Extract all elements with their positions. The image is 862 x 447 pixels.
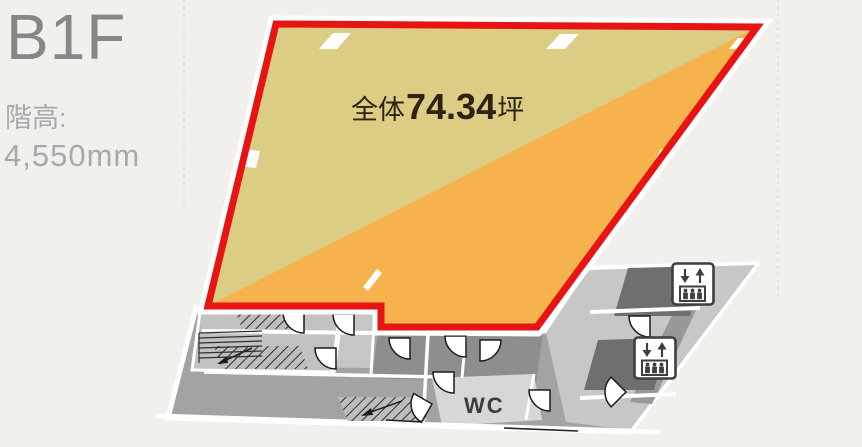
floor-plan-page: WC B1F 階高: 4,550mm 全体 74.34 坪 <box>0 0 862 447</box>
wc-label: WC <box>464 393 505 418</box>
elevator-icon <box>635 338 676 379</box>
ceiling-height-label: 階高: <box>5 96 67 135</box>
total-area-label: 全体 74.34 坪 <box>351 86 524 128</box>
area-label-prefix: 全体 <box>351 88 405 127</box>
area-value: 74.34 <box>406 86 496 128</box>
area-unit: 坪 <box>497 88 524 127</box>
floor-plan-canvas: WC <box>0 0 862 447</box>
ceiling-height-value: 4,550mm <box>4 138 140 174</box>
floor-title: B1F <box>6 4 126 71</box>
elevator-icon <box>673 264 714 305</box>
